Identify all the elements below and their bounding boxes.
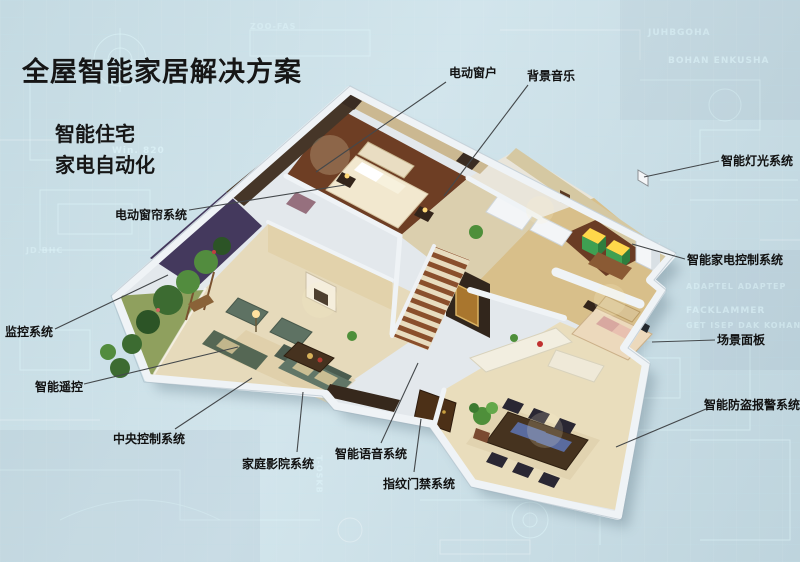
callout-electric-curtain-system: 电动窗帘系统 bbox=[115, 206, 187, 223]
callout-line-smart-voice-system bbox=[381, 363, 418, 443]
callout-line-monitoring-system bbox=[55, 275, 168, 329]
callout-central-control-system: 中央控制系统 bbox=[113, 430, 185, 447]
callout-monitoring-system: 监控系统 bbox=[5, 323, 53, 340]
callout-line-central-control-system bbox=[175, 378, 252, 429]
callout-line-scene-panel bbox=[652, 340, 715, 342]
callout-line-smart-appliance-control bbox=[632, 244, 685, 259]
callout-line-anti-theft-alarm bbox=[616, 409, 706, 447]
callout-background-music: 背景音乐 bbox=[527, 67, 575, 84]
callout-anti-theft-alarm: 智能防盗报警系统 bbox=[704, 396, 800, 413]
callout-electric-window: 电动窗户 bbox=[449, 64, 497, 81]
callout-smart-remote-control: 智能遥控 bbox=[35, 378, 83, 395]
callout-line-electric-curtain-system bbox=[189, 185, 345, 210]
callout-line-smart-remote-control bbox=[84, 347, 238, 384]
smart-home-poster: Win. 820JUHBGOHABOHAN ENKUSHAADAPTEL ADA… bbox=[0, 0, 800, 562]
callout-scene-panel: 场景面板 bbox=[717, 331, 765, 348]
callout-home-theater-system: 家庭影院系统 bbox=[242, 455, 314, 472]
callout-line-background-music bbox=[444, 85, 528, 196]
callout-smart-appliance-control: 智能家电控制系统 bbox=[687, 251, 783, 268]
callout-line-electric-window bbox=[316, 82, 446, 172]
callout-smart-voice-system: 智能语音系统 bbox=[335, 445, 407, 462]
callout-fingerprint-access: 指纹门禁系统 bbox=[383, 475, 455, 492]
callout-smart-lighting-system: 智能灯光系统 bbox=[721, 152, 793, 169]
callout-line-smart-lighting-system bbox=[644, 161, 719, 177]
callout-line-fingerprint-access bbox=[414, 419, 421, 472]
callout-line-home-theater-system bbox=[297, 392, 303, 452]
